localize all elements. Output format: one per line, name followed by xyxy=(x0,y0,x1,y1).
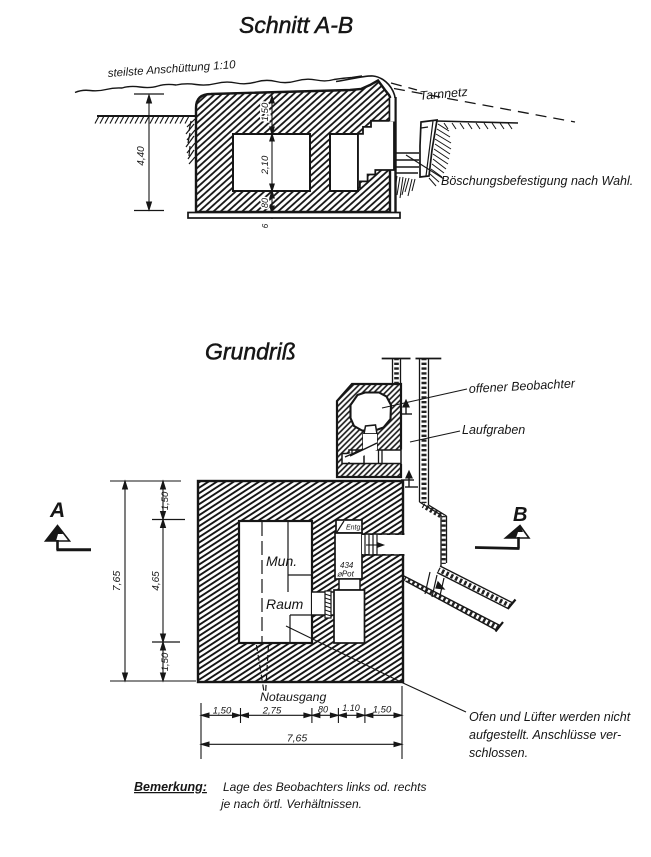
svg-text:schlossen.: schlossen. xyxy=(469,746,528,760)
svg-text:Raum: Raum xyxy=(266,596,304,612)
svg-text:7,65: 7,65 xyxy=(287,733,308,745)
svg-text:80: 80 xyxy=(318,705,328,715)
svg-text:Böschungsbefestigung nach Wahl: Böschungsbefestigung nach Wahl. xyxy=(441,174,633,188)
svg-text:1,50: 1,50 xyxy=(160,652,171,671)
svg-text:Lage des Beobachters links od.: Lage des Beobachters links od. rechts xyxy=(223,780,426,794)
svg-text:Notausgang: Notausgang xyxy=(260,690,326,704)
svg-text:Grundriß: Grundriß xyxy=(205,339,296,365)
svg-text:Laufgraben: Laufgraben xyxy=(462,423,525,437)
svg-text:1,50: 1,50 xyxy=(213,706,232,717)
svg-text:7,65: 7,65 xyxy=(111,571,123,592)
svg-text:6: 6 xyxy=(261,223,270,228)
svg-text:2,75: 2,75 xyxy=(262,706,282,717)
svg-text:4,40: 4,40 xyxy=(136,146,147,166)
svg-text:4,65: 4,65 xyxy=(151,571,162,591)
svg-text:⌀Pot: ⌀Pot xyxy=(337,570,355,579)
svg-text:2,10: 2,10 xyxy=(260,155,271,175)
svg-text:80: 80 xyxy=(260,198,270,208)
svg-text:Schnitt A-B: Schnitt A-B xyxy=(239,12,353,38)
svg-text:Bemerkung:: Bemerkung: xyxy=(134,780,207,794)
svg-text:A: A xyxy=(49,499,65,522)
svg-text:1,50: 1,50 xyxy=(260,102,271,121)
svg-text:aufgestellt. Anschlüsse ver-: aufgestellt. Anschlüsse ver- xyxy=(469,728,621,742)
svg-text:B: B xyxy=(513,504,527,526)
svg-text:Mun.: Mun. xyxy=(266,553,297,569)
svg-text:1.10: 1.10 xyxy=(342,703,360,713)
svg-text:1,50: 1,50 xyxy=(160,491,171,510)
svg-text:Ofen und Lüfter werden nicht: Ofen und Lüfter werden nicht xyxy=(469,710,631,724)
svg-text:je nach örtl. Verhältnissen.: je nach örtl. Verhältnissen. xyxy=(219,797,362,811)
svg-text:1,50: 1,50 xyxy=(373,705,392,716)
svg-text:Entg.: Entg. xyxy=(346,525,362,532)
